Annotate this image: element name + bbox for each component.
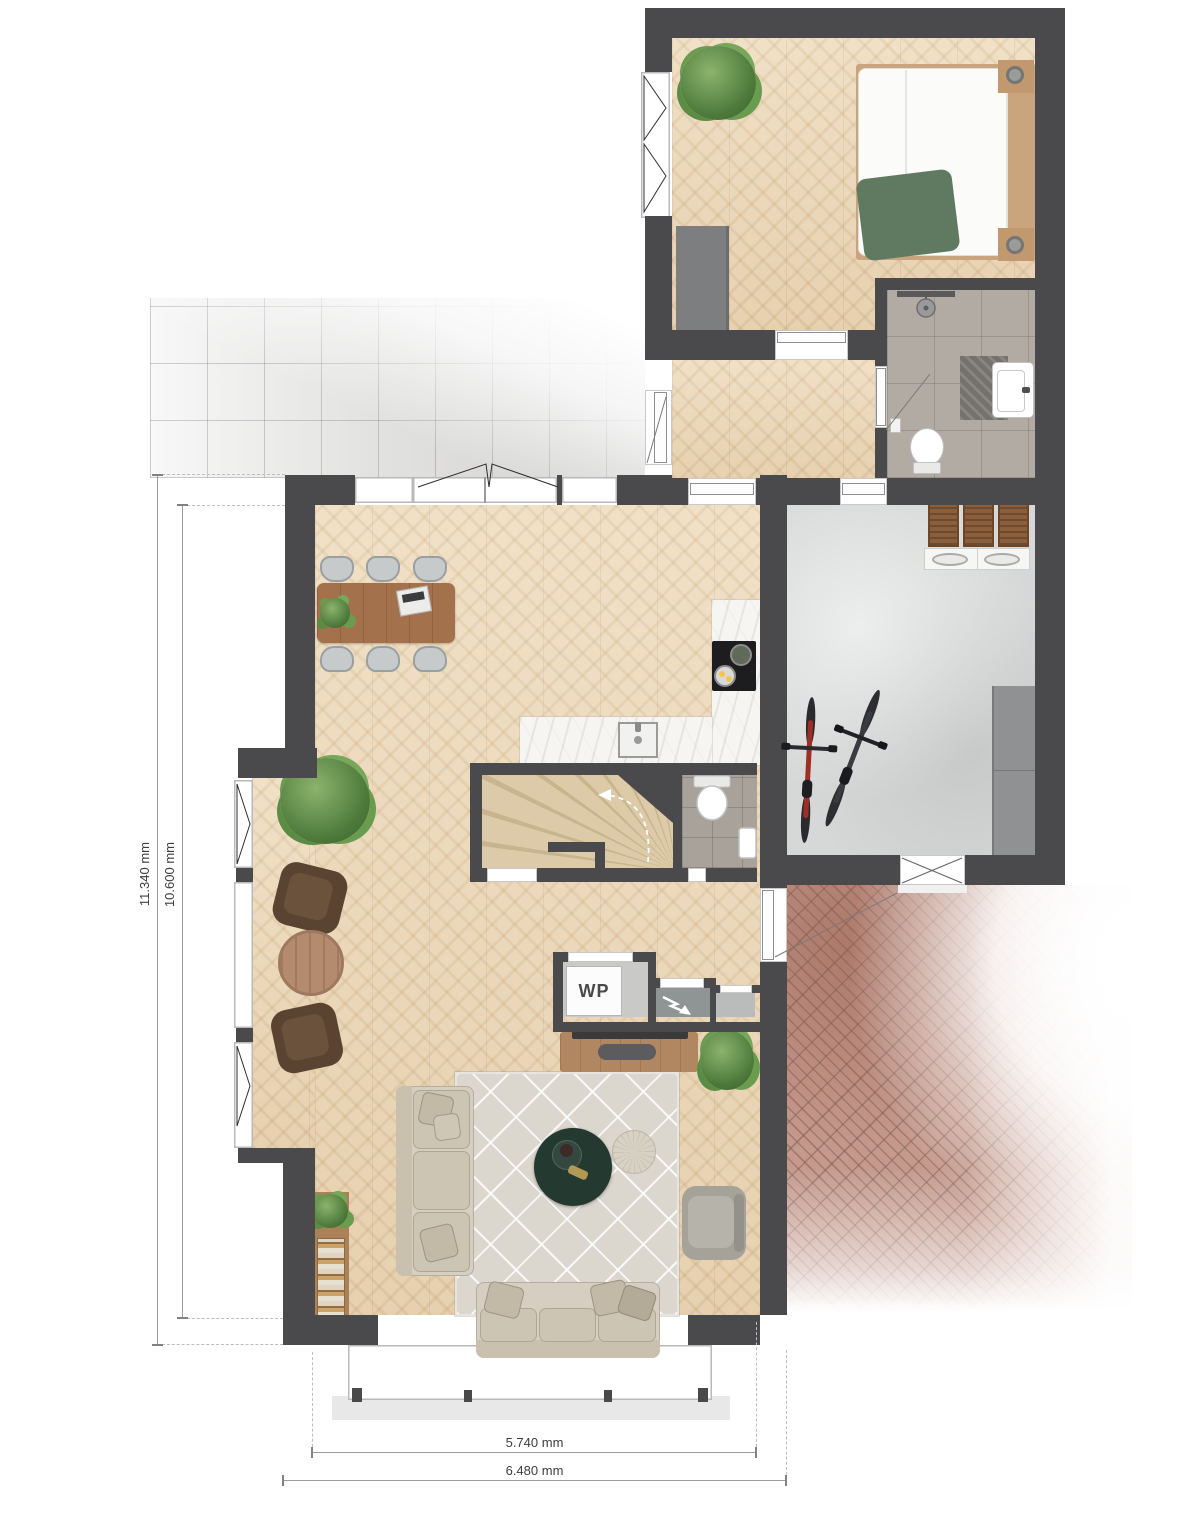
sofa-cushion bbox=[413, 1151, 470, 1210]
floor-plan-canvas: WP bbox=[0, 0, 1200, 1531]
bedroom-window bbox=[641, 72, 670, 218]
bed-green-throw bbox=[855, 168, 960, 261]
sink-drain bbox=[634, 736, 642, 744]
wall-hall-bottom-c bbox=[887, 478, 1065, 505]
wardrobe bbox=[676, 226, 729, 332]
heat-pump-unit: WP bbox=[566, 966, 622, 1016]
shower-rail bbox=[897, 291, 955, 297]
dim-extension bbox=[756, 1322, 757, 1452]
patio-tiles bbox=[150, 298, 645, 478]
bay-mullion bbox=[352, 1388, 362, 1402]
sliding-door-mullion bbox=[484, 477, 486, 503]
patio-fade bbox=[150, 298, 645, 478]
wall-stairs-left bbox=[470, 763, 482, 870]
wall-facade-top-divider bbox=[557, 475, 562, 505]
dim-tick bbox=[177, 504, 188, 506]
bathroom-toilet-tank bbox=[913, 462, 941, 474]
lamp-icon bbox=[1006, 66, 1024, 84]
utility-door-opening bbox=[720, 985, 752, 993]
dim-line-height-outer bbox=[157, 475, 158, 1345]
meter-cupboard-floor bbox=[656, 988, 710, 1017]
dryer-door-icon bbox=[984, 553, 1020, 566]
bedroom-door-leaf bbox=[777, 332, 846, 343]
meter-door-opening bbox=[660, 978, 704, 988]
sofa-cushion bbox=[539, 1308, 596, 1342]
wall-stairs-notch-v bbox=[595, 842, 605, 882]
wall-living-right-upper bbox=[760, 475, 787, 888]
sofa-back bbox=[396, 1086, 412, 1276]
brick-terrace bbox=[787, 885, 1132, 1320]
wall-utility-top-b bbox=[752, 985, 760, 993]
wall-hall-bottom-a bbox=[672, 478, 688, 505]
dim-tick bbox=[177, 1317, 188, 1319]
wall-closet-bottom bbox=[553, 1022, 760, 1032]
bay-window-bottom bbox=[234, 1042, 253, 1148]
dim-tick bbox=[152, 1344, 163, 1346]
wall-bedroom-left-upper bbox=[645, 8, 672, 72]
dining-chair bbox=[366, 646, 400, 672]
dining-chair bbox=[413, 646, 447, 672]
sink-basin bbox=[997, 370, 1025, 412]
frying-pan-icon bbox=[714, 665, 736, 687]
sliding-door bbox=[413, 477, 557, 503]
closet-door-opening bbox=[568, 952, 633, 962]
garage-exterior-door bbox=[900, 855, 965, 885]
front-door-leaf bbox=[654, 392, 667, 463]
storage-basket bbox=[998, 502, 1029, 547]
wall-closet-divider-1 bbox=[648, 952, 656, 1032]
dining-chair bbox=[413, 556, 447, 582]
wall-garage-bottom-b bbox=[965, 855, 1065, 885]
sofa-bottom bbox=[476, 1282, 660, 1358]
faucet-icon bbox=[1022, 387, 1030, 393]
machine-divider bbox=[977, 549, 978, 569]
kitchen-sink bbox=[618, 722, 658, 758]
pan-icon bbox=[730, 644, 752, 666]
heat-pump-label: WP bbox=[579, 981, 610, 1002]
wall-bathroom-left-b bbox=[875, 428, 887, 478]
sofa-left bbox=[396, 1086, 474, 1276]
wall-stairs-bottom-b bbox=[537, 868, 688, 882]
console-recess bbox=[598, 1044, 656, 1060]
wall-bay-stub-1 bbox=[236, 868, 253, 882]
dim-extension bbox=[157, 1344, 283, 1345]
bay-window-top bbox=[234, 780, 253, 868]
table-cup bbox=[560, 1144, 573, 1157]
staircase-treads bbox=[482, 775, 673, 868]
bench-plant bbox=[312, 1194, 348, 1228]
wall-bathroom-top bbox=[875, 278, 1035, 290]
dim-line-width-inner bbox=[312, 1452, 757, 1453]
hallway-floor bbox=[672, 360, 887, 478]
brick-fade bbox=[787, 885, 1132, 1320]
wc-door-opening bbox=[688, 868, 706, 882]
bathroom-toilet-bowl bbox=[910, 428, 944, 466]
facade-window-left bbox=[355, 477, 413, 503]
wall-utility-top-a bbox=[716, 985, 720, 993]
wall-living-right-lower bbox=[760, 962, 787, 1315]
facade-window-right bbox=[562, 477, 617, 503]
faucet-icon bbox=[635, 722, 641, 732]
utility-box-floor bbox=[716, 993, 755, 1017]
dim-extension bbox=[182, 505, 285, 506]
wall-bedroom-bottom-left bbox=[645, 330, 775, 360]
wall-garage-bottom-a bbox=[760, 855, 900, 885]
toilet-roll-holder bbox=[890, 418, 901, 433]
bay-mullion bbox=[604, 1390, 612, 1402]
armchair-seat bbox=[688, 1196, 734, 1248]
dim-label-height-inner: 10.600 mm bbox=[163, 842, 177, 907]
wall-stairs-bottom-a bbox=[470, 868, 487, 882]
lamp-icon bbox=[1006, 236, 1024, 254]
wall-bay-stub-2 bbox=[236, 1028, 253, 1042]
wall-facade-top-b bbox=[617, 475, 672, 505]
wall-left-exterior-upper bbox=[285, 475, 315, 750]
wall-bottom-left bbox=[283, 1315, 378, 1345]
living-plant-right bbox=[700, 1030, 754, 1090]
bay-mullion bbox=[464, 1390, 472, 1402]
laptop-icon bbox=[396, 585, 432, 616]
bathroom-door-leaf bbox=[876, 368, 886, 426]
washer-dryer-icon bbox=[924, 548, 1030, 570]
wc-floor bbox=[682, 775, 757, 868]
wall-meter-top-a bbox=[656, 978, 660, 988]
dim-extension bbox=[182, 1318, 283, 1319]
storage-basket bbox=[928, 502, 959, 547]
cooktop bbox=[712, 641, 756, 691]
book-stack bbox=[317, 1238, 345, 1318]
dim-label-width-outer: 6.480 mm bbox=[283, 1464, 786, 1478]
garage-cabinet bbox=[992, 686, 1035, 855]
wall-right-exterior bbox=[1035, 8, 1065, 885]
cabinet-divider bbox=[994, 770, 1035, 771]
hall-living-door-leaf bbox=[690, 483, 754, 495]
dim-extension bbox=[157, 474, 285, 475]
dim-extension bbox=[786, 1350, 787, 1480]
washer-door-icon bbox=[932, 553, 968, 566]
pouf bbox=[612, 1130, 656, 1174]
dim-line-width-outer bbox=[283, 1480, 786, 1481]
bedroom-plant bbox=[680, 46, 756, 120]
side-table-round bbox=[278, 930, 344, 996]
wall-wc-left bbox=[673, 763, 682, 868]
table-plant bbox=[320, 598, 350, 628]
wall-bedroom-top bbox=[645, 8, 1065, 38]
dining-chair bbox=[320, 556, 354, 582]
bathroom-sink bbox=[992, 362, 1034, 418]
hall-garage-door-leaf bbox=[842, 483, 885, 495]
stairs-door-opening bbox=[487, 868, 537, 882]
wall-bedroom-bottom-right bbox=[848, 330, 875, 360]
wall-bay-top bbox=[238, 748, 317, 778]
coffee-table bbox=[534, 1128, 612, 1206]
wall-bottom-right bbox=[688, 1315, 760, 1345]
kitchen-island bbox=[520, 717, 712, 765]
bay-window-middle bbox=[234, 882, 253, 1028]
dim-tick bbox=[152, 474, 163, 476]
wall-bathroom-left-a bbox=[875, 278, 887, 366]
dim-line-height-inner bbox=[182, 505, 183, 1318]
living-terrace-door-leaf bbox=[762, 890, 774, 960]
dim-label-height-outer: 11.340 mm bbox=[138, 842, 152, 906]
table-candle bbox=[567, 1164, 589, 1180]
sofa-back bbox=[476, 1340, 660, 1358]
storage-basket bbox=[963, 502, 994, 547]
wall-wc-bottom bbox=[706, 868, 757, 882]
armchair-back bbox=[734, 1194, 744, 1252]
armchair-gray bbox=[682, 1186, 746, 1260]
wall-stairs-top bbox=[470, 763, 757, 775]
wall-closet-left bbox=[553, 952, 563, 1030]
bay-mullion bbox=[698, 1388, 708, 1402]
sofa-pillow bbox=[432, 1112, 461, 1141]
garage-door-threshold bbox=[898, 885, 967, 893]
dining-chair bbox=[320, 646, 354, 672]
dim-label-width-inner: 5.740 mm bbox=[312, 1436, 757, 1450]
dining-chair bbox=[366, 556, 400, 582]
